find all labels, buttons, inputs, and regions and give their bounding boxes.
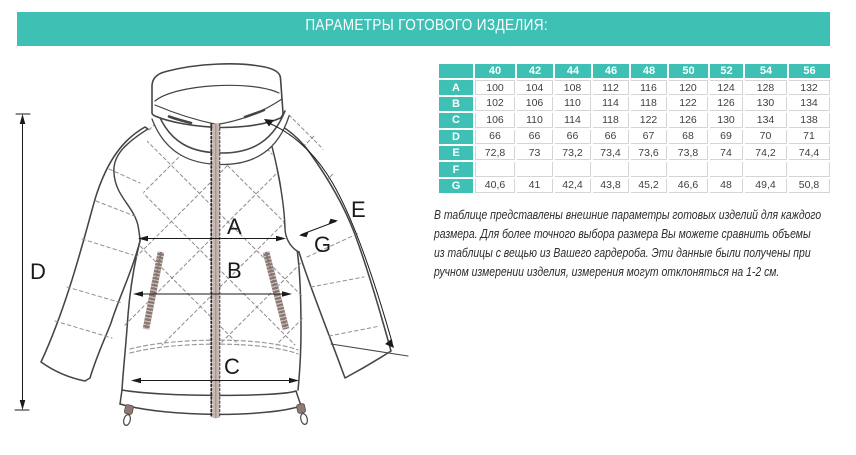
svg-text:C: C (224, 354, 240, 379)
svg-text:G: G (314, 232, 331, 257)
svg-text:E: E (351, 197, 366, 222)
svg-text:D: D (30, 259, 46, 284)
svg-text:B: B (227, 258, 242, 283)
svg-text:A: A (227, 214, 242, 239)
